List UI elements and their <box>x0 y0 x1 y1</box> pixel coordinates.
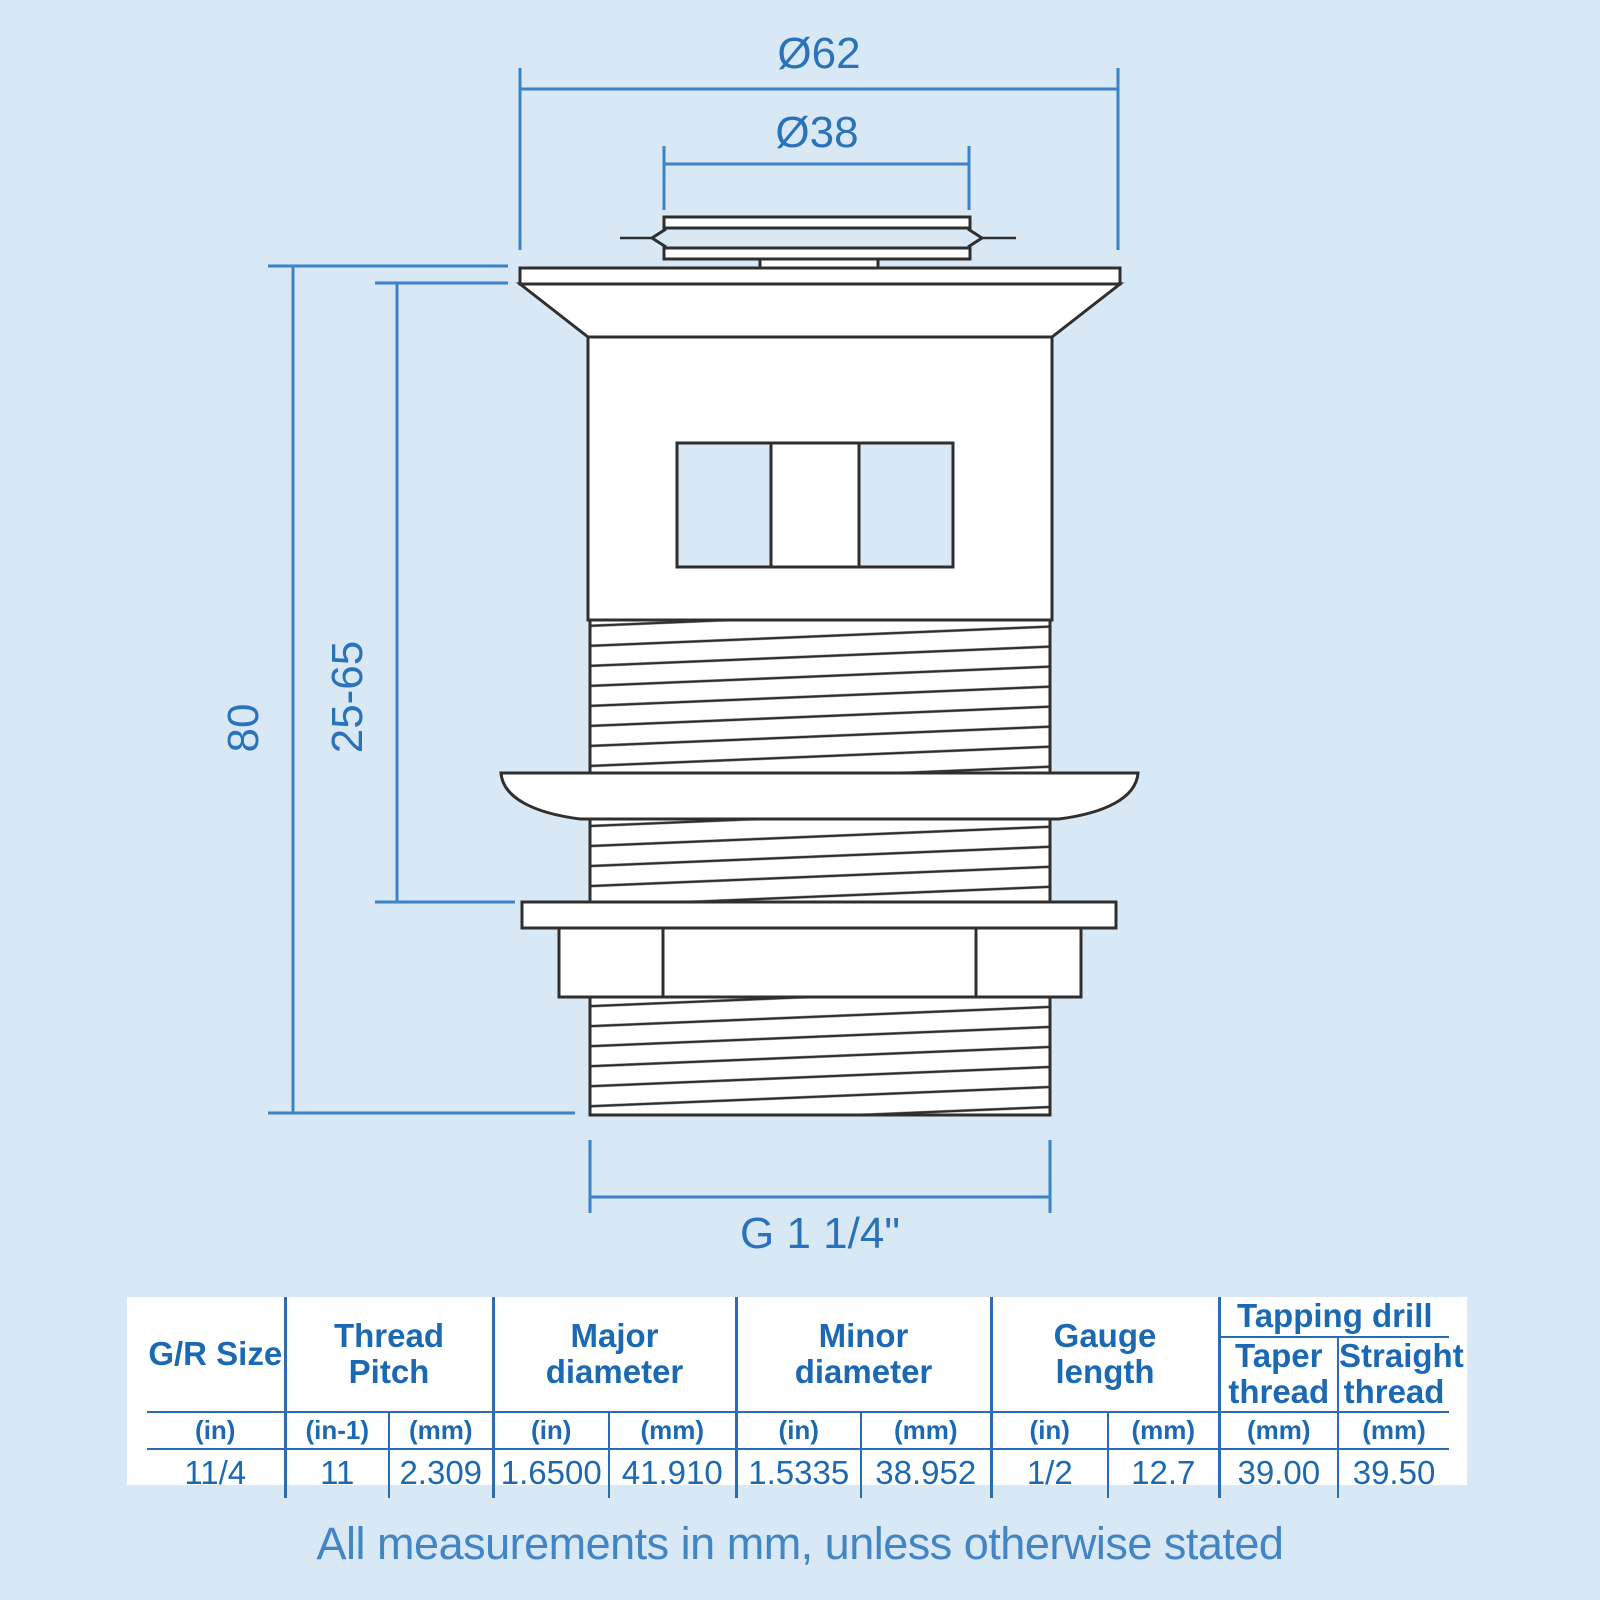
header-straight-thread: Straight thread <box>1338 1337 1449 1412</box>
units-row: (in) (in-1) (mm) (in) (mm) (in) (mm) (in… <box>147 1412 1449 1449</box>
thread-size-label: G 1 1/4" <box>740 1209 900 1258</box>
unit-cell: (in) <box>736 1412 861 1449</box>
dim-clamp-range-lines <box>375 283 515 902</box>
unit-cell: (mm) <box>861 1412 991 1449</box>
sealing-washer <box>501 773 1138 819</box>
value-cell: 39.00 <box>1219 1449 1338 1498</box>
measurements-note: All measurements in mm, unless otherwise… <box>0 1518 1600 1570</box>
values-row: 11/4 11 2.309 1.6500 41.910 1.5335 38.95… <box>147 1449 1449 1498</box>
body-slot-window <box>677 443 953 567</box>
threaded-shank <box>590 620 1050 1115</box>
unit-cell: (in-1) <box>285 1412 389 1449</box>
dim-thread-size-lines <box>590 1140 1050 1213</box>
unit-cell: (in) <box>493 1412 609 1449</box>
value-cell: 11 <box>285 1449 389 1498</box>
plug-cap <box>620 217 1016 268</box>
inner-diameter-label: Ø38 <box>775 108 858 157</box>
unit-cell: (mm) <box>1338 1412 1449 1449</box>
dim-overall-height-lines <box>268 266 575 1113</box>
header-major-diameter: Major diameter <box>493 1297 736 1412</box>
basin-waste-technical-diagram: Ø62 Ø38 80 25-65 G 1 1/4" G/R Size Threa… <box>0 0 1600 1600</box>
thread-spec-panel: G/R Size Thread Pitch Major diameter Min… <box>127 1297 1467 1485</box>
thread-spec-table: G/R Size Thread Pitch Major diameter Min… <box>147 1297 1449 1498</box>
value-cell: 38.952 <box>861 1449 991 1498</box>
waste-fitting-outline <box>501 217 1138 1115</box>
unit-cell: (mm) <box>609 1412 736 1449</box>
unit-cell: (mm) <box>1108 1412 1219 1449</box>
header-taper-thread: Taper thread <box>1219 1337 1338 1412</box>
top-flange <box>520 268 1120 337</box>
value-cell: 41.910 <box>609 1449 736 1498</box>
backnut <box>559 928 1081 997</box>
value-cell: 12.7 <box>1108 1449 1219 1498</box>
header-gauge-length: Gauge length <box>991 1297 1219 1412</box>
value-cell: 1.6500 <box>493 1449 609 1498</box>
unit-cell: (mm) <box>389 1412 493 1449</box>
value-cell: 11/4 <box>147 1449 285 1498</box>
value-cell: 1.5335 <box>736 1449 861 1498</box>
unit-cell: (in) <box>147 1412 285 1449</box>
outer-diameter-label: Ø62 <box>777 29 860 78</box>
header-gr-size: G/R Size <box>147 1297 285 1412</box>
unit-cell: (in) <box>991 1412 1108 1449</box>
header-thread-pitch: Thread Pitch <box>285 1297 493 1412</box>
overall-height-label: 80 <box>219 704 268 753</box>
value-cell: 39.50 <box>1338 1449 1449 1498</box>
clamp-range-label: 25-65 <box>323 641 372 754</box>
value-cell: 2.309 <box>389 1449 493 1498</box>
value-cell: 1/2 <box>991 1449 1108 1498</box>
header-minor-diameter: Minor diameter <box>736 1297 991 1412</box>
header-tapping-drill: Tapping drill <box>1219 1297 1449 1337</box>
backnut-washer <box>522 902 1116 928</box>
unit-cell: (mm) <box>1219 1412 1338 1449</box>
